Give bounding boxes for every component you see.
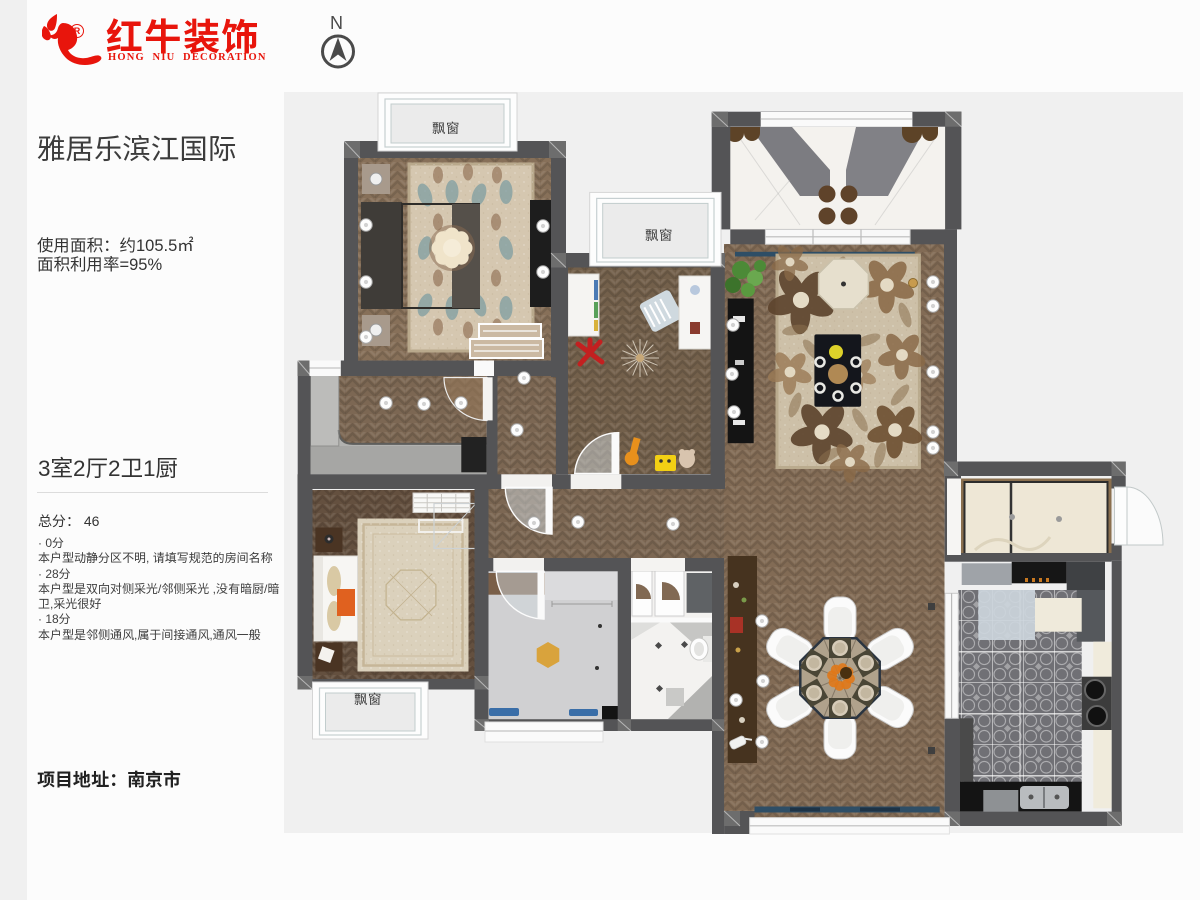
svg-text:飘窗: 飘窗 xyxy=(645,228,673,243)
svg-text:飘窗: 飘窗 xyxy=(354,692,382,707)
svg-text:N: N xyxy=(330,13,343,33)
svg-text:飘窗: 飘窗 xyxy=(432,121,460,136)
